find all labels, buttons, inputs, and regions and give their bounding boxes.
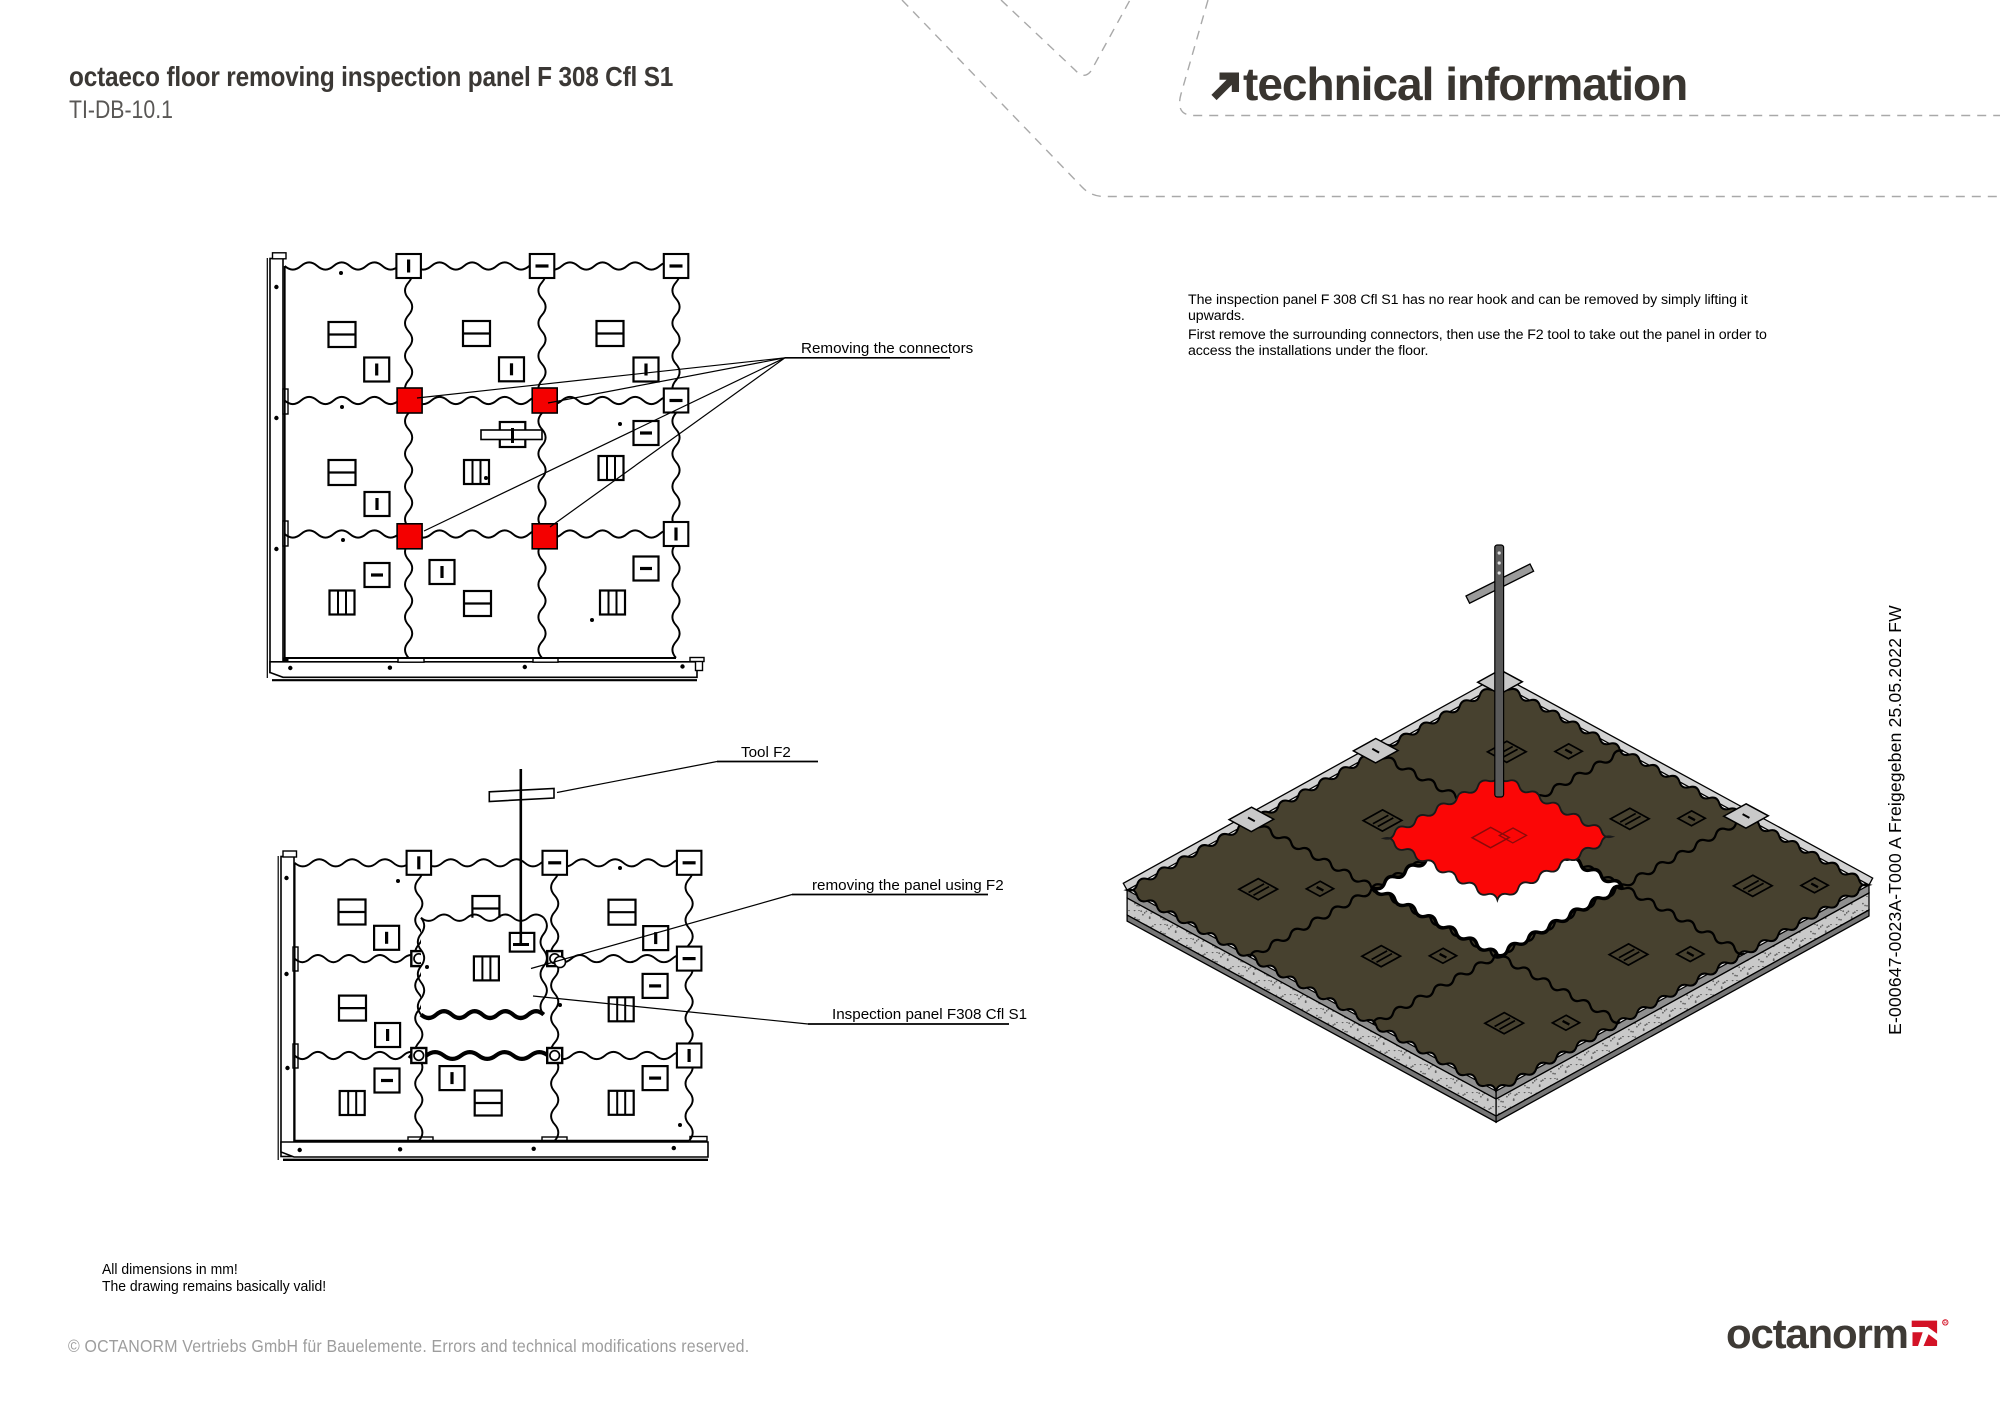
- svg-text:removing the panel using F2: removing the panel using F2: [812, 877, 1004, 894]
- svg-text:E-000647-0023A-T000 A Freigege: E-000647-0023A-T000 A Freigegeben 25.05.…: [1885, 605, 1905, 1035]
- svg-text:Tool F2: Tool F2: [741, 744, 791, 761]
- svg-text:Inspection panel F308 Cfl S1: Inspection panel F308 Cfl S1: [832, 1006, 1027, 1023]
- svg-text:Removing the connectors: Removing the connectors: [801, 340, 974, 357]
